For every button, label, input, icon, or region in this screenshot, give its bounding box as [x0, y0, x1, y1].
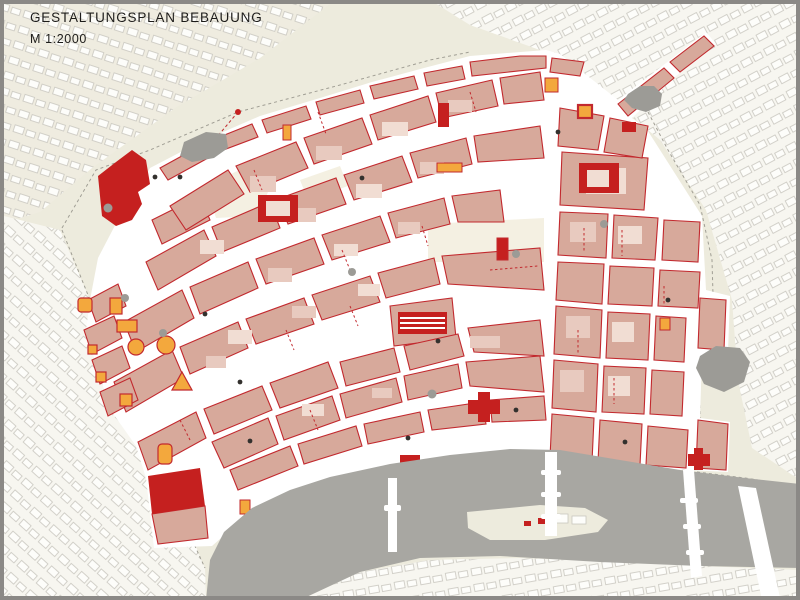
map-title-block: GESTALTUNGSPLAN BEBAUUNG M 1:2000	[30, 10, 263, 46]
map-title: GESTALTUNGSPLAN BEBAUUNG	[30, 10, 263, 25]
map-scale: M 1:2000	[30, 32, 263, 46]
city-map-svg	[0, 0, 800, 600]
map-stage	[0, 0, 800, 600]
